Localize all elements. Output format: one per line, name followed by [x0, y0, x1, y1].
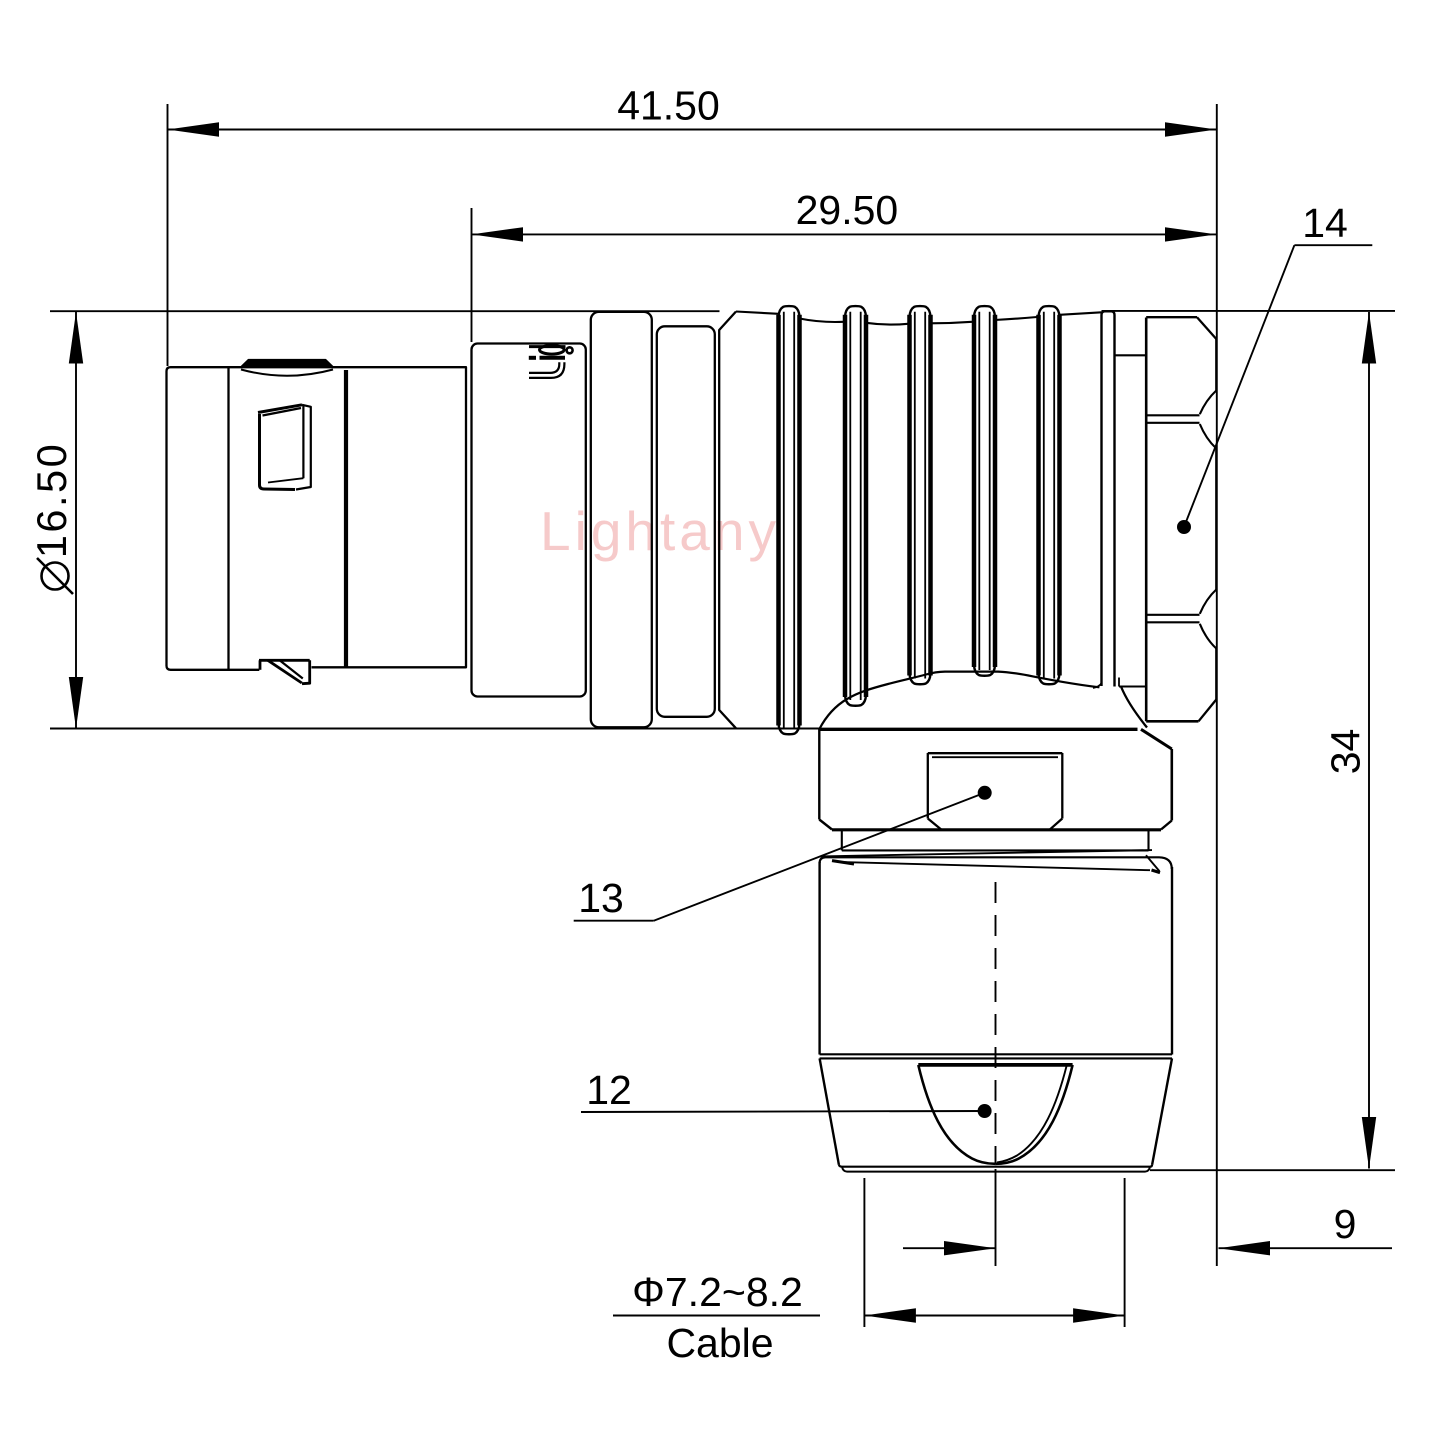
svg-text:14: 14 [1302, 200, 1348, 246]
svg-text:Cable: Cable [666, 1320, 773, 1366]
svg-text:41.50: 41.50 [617, 83, 720, 129]
svg-text:9: 9 [1334, 1201, 1357, 1247]
svg-text:12: 12 [586, 1067, 632, 1113]
svg-text:29.50: 29.50 [796, 187, 899, 233]
svg-text:13: 13 [578, 875, 624, 921]
svg-text:34: 34 [1323, 729, 1369, 775]
svg-text:16.50: 16.50 [28, 442, 75, 558]
svg-text:Lightany: Lightany [540, 500, 780, 562]
svg-text:Φ7.2~8.2: Φ7.2~8.2 [632, 1269, 803, 1315]
